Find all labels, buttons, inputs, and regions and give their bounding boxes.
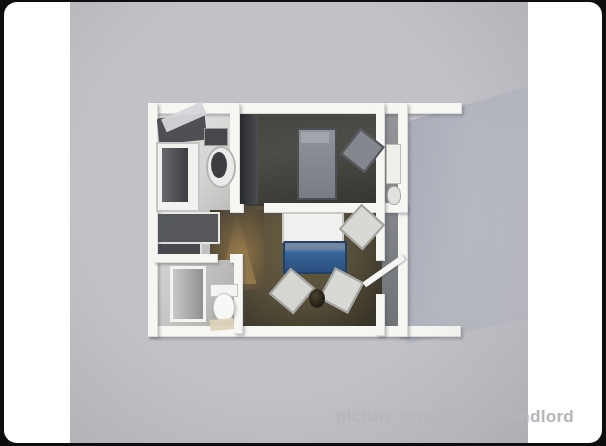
bedroom-wardrobe: [240, 114, 258, 204]
side-bath-vanity: [386, 144, 401, 184]
kitchen-unit-front: [162, 148, 188, 202]
wall-left: [148, 103, 158, 337]
floorplan-photo: [70, 2, 528, 443]
floorplan-render: [70, 2, 528, 443]
bedroom-bed-pillow: [301, 132, 329, 143]
bathroom-mat: [210, 318, 235, 331]
wall-side-divider-top: [376, 103, 385, 261]
wall-right: [398, 103, 408, 337]
kitchen-cabinet-block: [150, 212, 220, 244]
kitchen-appliance-box: [204, 128, 228, 146]
living-plant: [309, 289, 325, 308]
listing-photo-card: picture provided by landlord: [4, 2, 602, 443]
wall-side-divider-bottom: [376, 294, 385, 336]
wall-bottom: [148, 326, 461, 337]
cast-shadow: [406, 86, 528, 344]
wall-bathroom-top-left: [154, 254, 218, 263]
bathroom-shower: [170, 266, 206, 322]
side-bath-toilet: [387, 186, 401, 205]
living-table: [282, 212, 344, 243]
watermark-text: picture provided by landlord: [336, 407, 574, 427]
wall-middle-stub: [230, 203, 244, 213]
kitchen-sink-basin: [211, 152, 227, 178]
